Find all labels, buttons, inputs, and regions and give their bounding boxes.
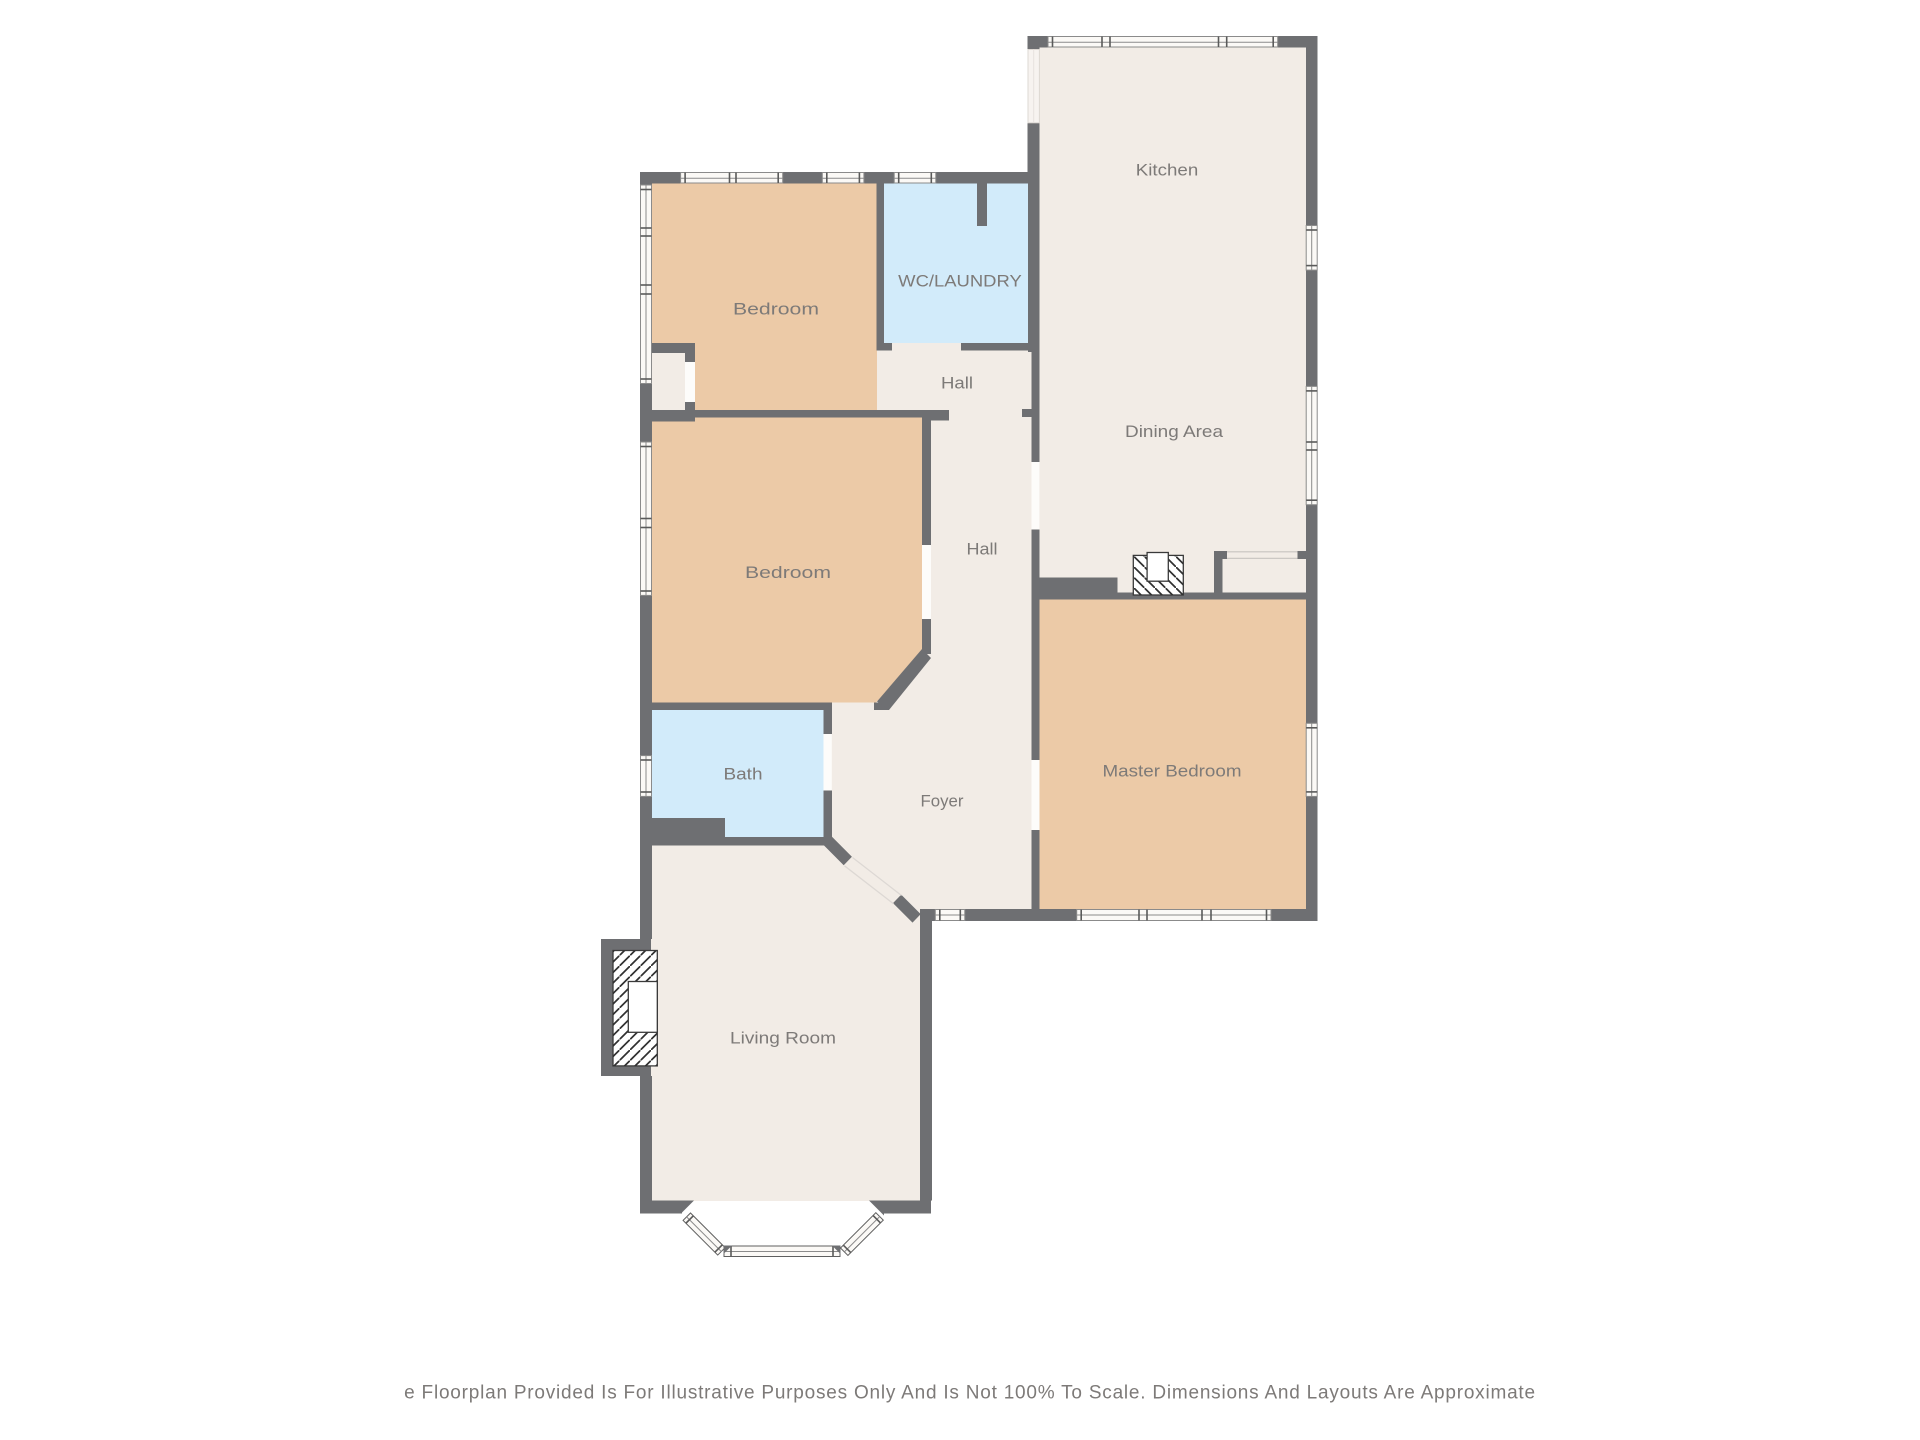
svg-text:Bedroom: Bedroom (745, 564, 831, 582)
svg-text:e Floorplan Provided Is For Il: e Floorplan Provided Is For Illustrative… (404, 1383, 1536, 1404)
svg-text:Living Room: Living Room (730, 1030, 836, 1048)
svg-text:Foyer: Foyer (921, 793, 965, 811)
svg-text:Master Bedroom: Master Bedroom (1103, 763, 1242, 781)
svg-text:Kitchen: Kitchen (1136, 162, 1199, 180)
svg-text:Hall: Hall (967, 541, 998, 559)
svg-text:Bath: Bath (724, 766, 763, 784)
svg-text:WC/LAUNDRY: WC/LAUNDRY (898, 273, 1022, 291)
svg-text:Bedroom: Bedroom (733, 301, 819, 319)
svg-text:Hall: Hall (941, 375, 973, 393)
svg-text:Dining Area: Dining Area (1125, 423, 1224, 441)
